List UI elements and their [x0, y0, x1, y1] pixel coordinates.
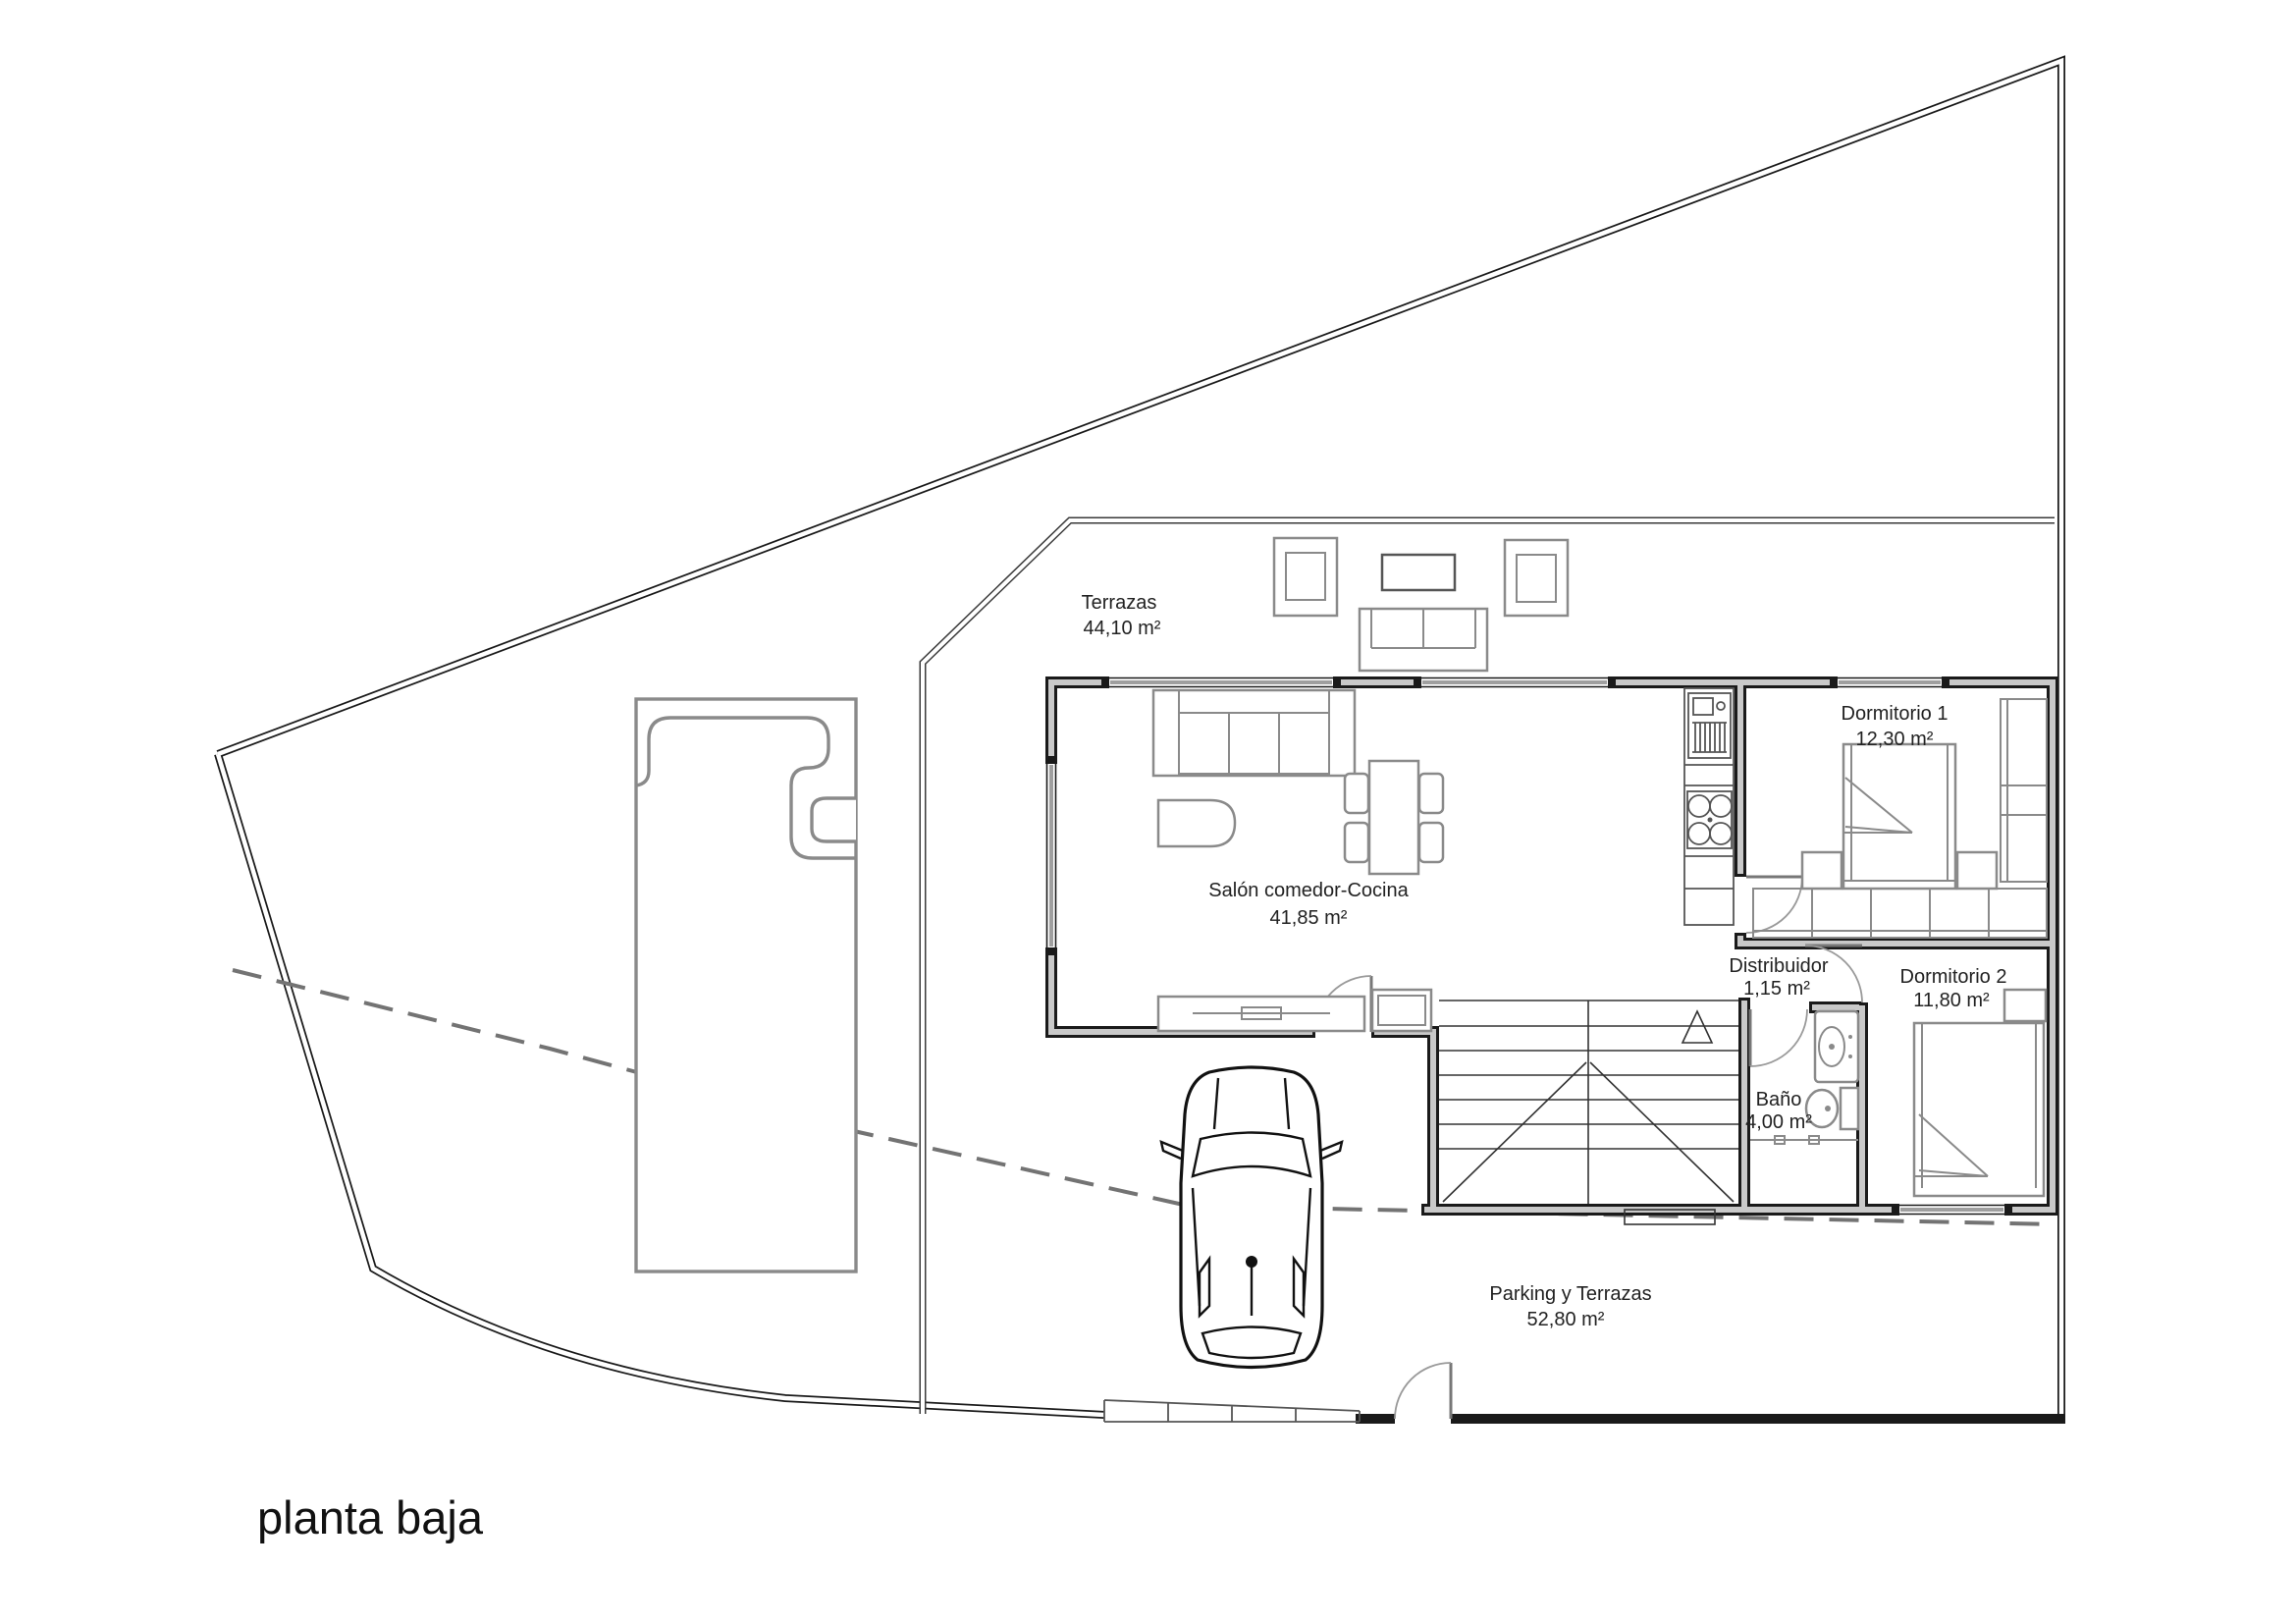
room-label-distribuidor: Distribuidor 1,15 m² — [1729, 955, 1828, 1000]
bedroom1-door — [1746, 877, 1802, 933]
svg-text:12,30 m²: 12,30 m² — [1856, 729, 1934, 750]
svg-text:52,80 m²: 52,80 m² — [1527, 1309, 1605, 1330]
stairs — [1439, 1001, 1738, 1224]
svg-text:4,00 m²: 4,00 m² — [1745, 1111, 1812, 1133]
kitchen-sink-icon — [1688, 693, 1731, 758]
svg-text:Parking y Terrazas: Parking y Terrazas — [1489, 1283, 1651, 1305]
kitchen-counter — [1684, 688, 1734, 925]
living-furniture — [1153, 690, 1443, 1031]
room-label-salon: Salón comedor-Cocina 41,85 m² — [1208, 880, 1409, 929]
pool — [636, 699, 856, 1271]
room-label-dormitorio1: Dormitorio 1 12,30 m² — [1842, 703, 1949, 750]
room-label-dormitorio2: Dormitorio 2 11,80 m² — [1900, 966, 2007, 1011]
svg-text:Salón comedor-Cocina: Salón comedor-Cocina — [1208, 880, 1409, 901]
terrace-furniture — [1274, 538, 1568, 671]
nightstand-icon — [1802, 852, 1842, 889]
perimeter-wall — [1451, 1414, 2065, 1424]
dining-table-icon — [1345, 761, 1443, 874]
nightstand-icon — [2004, 990, 2046, 1021]
armchair-icon — [1158, 800, 1235, 846]
floor-plan-page: Terrazas 44,10 m² Salón comedor-Cocina 4… — [0, 0, 2296, 1623]
room-label-parking: Parking y Terrazas 52,80 m² — [1489, 1283, 1651, 1330]
outdoor-table-icon — [1382, 555, 1455, 590]
svg-text:44,10 m²: 44,10 m² — [1084, 618, 1161, 639]
window — [1833, 676, 1947, 688]
window — [1416, 676, 1613, 688]
stair-direction-arrow — [1682, 1011, 1712, 1043]
plan-title: planta baja — [257, 1491, 484, 1543]
room-label-terrazas: Terrazas 44,10 m² — [1082, 592, 1161, 639]
driveway-ramp — [1104, 1400, 1360, 1422]
bed-icon — [1914, 1023, 2044, 1196]
entry-closet-icon — [1372, 990, 1431, 1031]
shower-screen-icon — [1750, 1136, 1858, 1144]
svg-text:11,80 m²: 11,80 m² — [1913, 990, 1990, 1011]
car-icon — [1161, 1067, 1342, 1368]
floor-plan-drawing: Terrazas 44,10 m² Salón comedor-Cocina 4… — [0, 0, 2296, 1623]
svg-text:Dormitorio 1: Dormitorio 1 — [1842, 703, 1949, 725]
svg-text:Terrazas: Terrazas — [1082, 592, 1157, 614]
nightstand-icon — [1957, 852, 1997, 889]
room-label-bano: Baño 4,00 m² — [1745, 1089, 1812, 1133]
bathroom-door — [1750, 1009, 1807, 1066]
window — [1104, 676, 1338, 688]
toilet-icon — [1806, 1088, 1858, 1129]
wardrobe-icon — [1753, 889, 2047, 938]
tv-cabinet-icon — [1158, 997, 1364, 1031]
wardrobe-icon — [2001, 699, 2047, 882]
svg-text:41,85 m²: 41,85 m² — [1270, 907, 1348, 929]
outdoor-armchair-icon — [1505, 540, 1568, 616]
outdoor-sofa-icon — [1360, 609, 1487, 671]
terrace-wall — [923, 520, 2055, 1414]
bedroom2-furniture — [1914, 990, 2046, 1196]
svg-text:Baño: Baño — [1756, 1089, 1802, 1110]
perimeter-wall — [1356, 1414, 1395, 1424]
window — [1895, 1204, 2009, 1216]
sofa-icon — [1153, 690, 1355, 776]
svg-text:Distribuidor: Distribuidor — [1729, 955, 1828, 977]
outdoor-armchair-icon — [1274, 538, 1337, 616]
svg-text:1,15 m²: 1,15 m² — [1743, 978, 1810, 1000]
gate-door — [1395, 1363, 1451, 1419]
sink-icon — [1815, 1011, 1858, 1082]
stove-icon — [1687, 791, 1732, 848]
svg-text:Dormitorio 2: Dormitorio 2 — [1900, 966, 2007, 988]
window — [1045, 759, 1057, 952]
bed-icon — [1843, 744, 1955, 889]
